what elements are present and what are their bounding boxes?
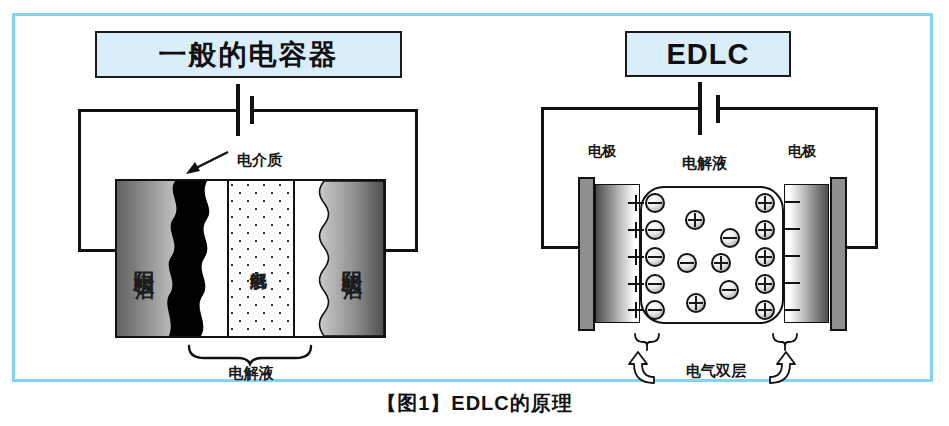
right-diagram-title: EDLC <box>625 31 791 77</box>
electrolyte-cell <box>640 186 784 324</box>
edlc-circuit-wire-right <box>875 107 878 249</box>
edlc-battery-long-plate <box>698 82 702 135</box>
left-circuit-stub-left <box>78 249 117 252</box>
separator-label: 电解纸 <box>250 257 267 260</box>
double-layer-arrow-left <box>626 350 656 386</box>
capacitor-body: 阳极箔 电解纸 阴极箔 <box>115 179 386 338</box>
left-circuit-wire-top-a <box>78 109 238 112</box>
edlc-circuit-wire-left <box>541 107 544 249</box>
left-circuit-wire-top-b <box>252 109 418 112</box>
edlc-circuit-wire-top-a <box>541 107 698 110</box>
edlc-circuit-stub-left <box>541 246 580 249</box>
left-electrode-label: 电极 <box>588 143 616 161</box>
left-circuit-stub-right <box>384 249 418 252</box>
left-electrode <box>595 184 640 323</box>
double-layer-brace-right <box>770 332 800 352</box>
cathode-foil-label: 阴极箔 <box>342 254 363 263</box>
left-diagram-title: 一般的电容器 <box>95 31 402 78</box>
right-electrode <box>784 184 829 323</box>
dielectric-wavy-band <box>167 181 209 336</box>
edlc-circuit-stub-right <box>845 246 877 249</box>
anode-foil-label: 阳极箔 <box>134 254 155 263</box>
figure-caption: 【图1】EDLC的原理 <box>0 390 949 417</box>
right-collector-bar <box>830 177 847 331</box>
edlc-electrolyte-label: 电解液 <box>682 154 727 173</box>
dielectric-arrow <box>178 147 232 179</box>
left-collector-bar <box>578 177 595 331</box>
left-circuit-wire-right <box>415 109 418 252</box>
left-battery-short-plate <box>250 96 254 124</box>
edlc-battery-short-plate <box>716 95 720 123</box>
left-circuit-wire-left <box>78 109 81 252</box>
right-electrode-label: 电极 <box>788 143 816 161</box>
left-battery-long-plate <box>236 84 240 136</box>
double-layer-label: 电气双层 <box>676 362 756 381</box>
double-layer-brace-left <box>632 332 662 352</box>
left-electrolyte-label: 电解液 <box>212 364 290 383</box>
figure-canvas: 一般的电容器 阳极箔 电解纸 阴极箔 电介质 电解液 E <box>0 0 949 426</box>
double-layer-arrow-right <box>768 350 798 386</box>
dielectric-label: 电介质 <box>237 151 282 170</box>
edlc-circuit-wire-top-b <box>720 107 878 110</box>
